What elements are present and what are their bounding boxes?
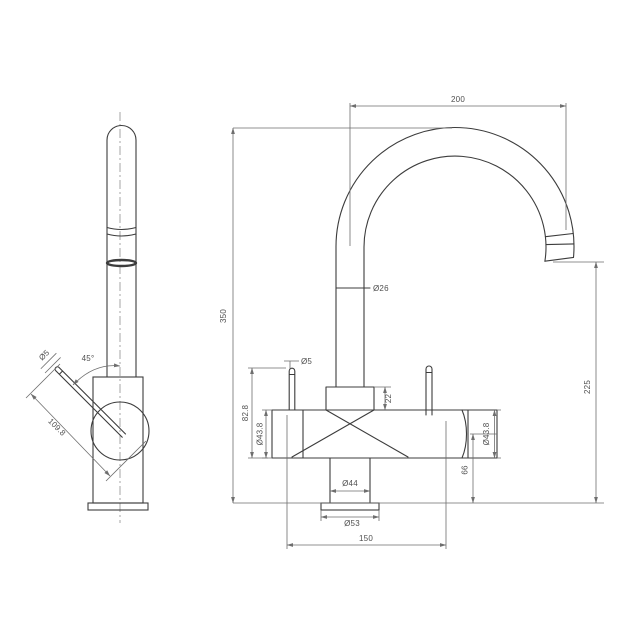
side-spout-outline (107, 126, 136, 378)
faucet-dimension-drawing: Ø5 45° 109.8 200 350 225 Ø26 Ø5 82.8 Ø43… (0, 0, 640, 640)
front-riser-tube (336, 247, 370, 387)
side-view-dimensions (26, 353, 146, 481)
side-base-flange (88, 503, 148, 510)
technical-drawing-page: Ø5 45° 109.8 200 350 225 Ø26 Ø5 82.8 Ø43… (0, 0, 640, 640)
outlet-225-label: 225 (583, 380, 592, 394)
side-angle-arc (73, 366, 120, 385)
front-right-lever-pin (426, 366, 432, 415)
side-lever-length-label: 109.8 (46, 417, 67, 438)
right-body-diameter-label: Ø43.8 (482, 422, 491, 445)
column-diameter-label: Ø44 (342, 479, 358, 488)
spread-150-ext (287, 415, 446, 549)
front-cross-diagonals (292, 410, 408, 457)
side-lever-length-ext-lines (26, 364, 146, 481)
side-body-height-label: 66 (461, 465, 470, 475)
pin-height-ext (248, 368, 286, 458)
front-spout-seam-lines (545, 234, 574, 245)
reach-200-ext (350, 103, 566, 246)
height-350-label: 350 (219, 309, 228, 323)
side-aerator-ring (107, 260, 136, 266)
spout-diameter-label: Ø26 (373, 284, 389, 293)
reach-200-label: 200 (451, 95, 465, 104)
left-body-diameter-label: Ø43.8 (256, 422, 265, 445)
pin-height-label: 82.8 (241, 404, 250, 421)
front-left-lever-pin (289, 368, 295, 410)
handle-spread-label: 150 (359, 534, 373, 543)
side-lever-angle-label: 45° (82, 354, 95, 363)
front-view (272, 128, 574, 510)
side-spout-joint-lines (107, 228, 136, 237)
front-spout-end-face (545, 257, 574, 261)
front-base-flange (321, 503, 379, 510)
object-lines (54, 126, 574, 511)
front-spout-inner-arc (364, 156, 546, 261)
front-neck-block (326, 387, 374, 410)
front-body-arm (272, 410, 497, 458)
front-right-boss-curve (462, 410, 467, 458)
pin-diameter-label: Ø5 (301, 357, 312, 366)
neck-height-label: 22 (384, 394, 393, 404)
front-view-dimensions (233, 103, 604, 549)
base-diameter-label: Ø53 (344, 519, 360, 528)
front-spout-outer-arc (336, 128, 574, 258)
side-body (93, 377, 143, 503)
dimension-lines (26, 103, 604, 549)
right-body-dia-ext (497, 410, 501, 458)
